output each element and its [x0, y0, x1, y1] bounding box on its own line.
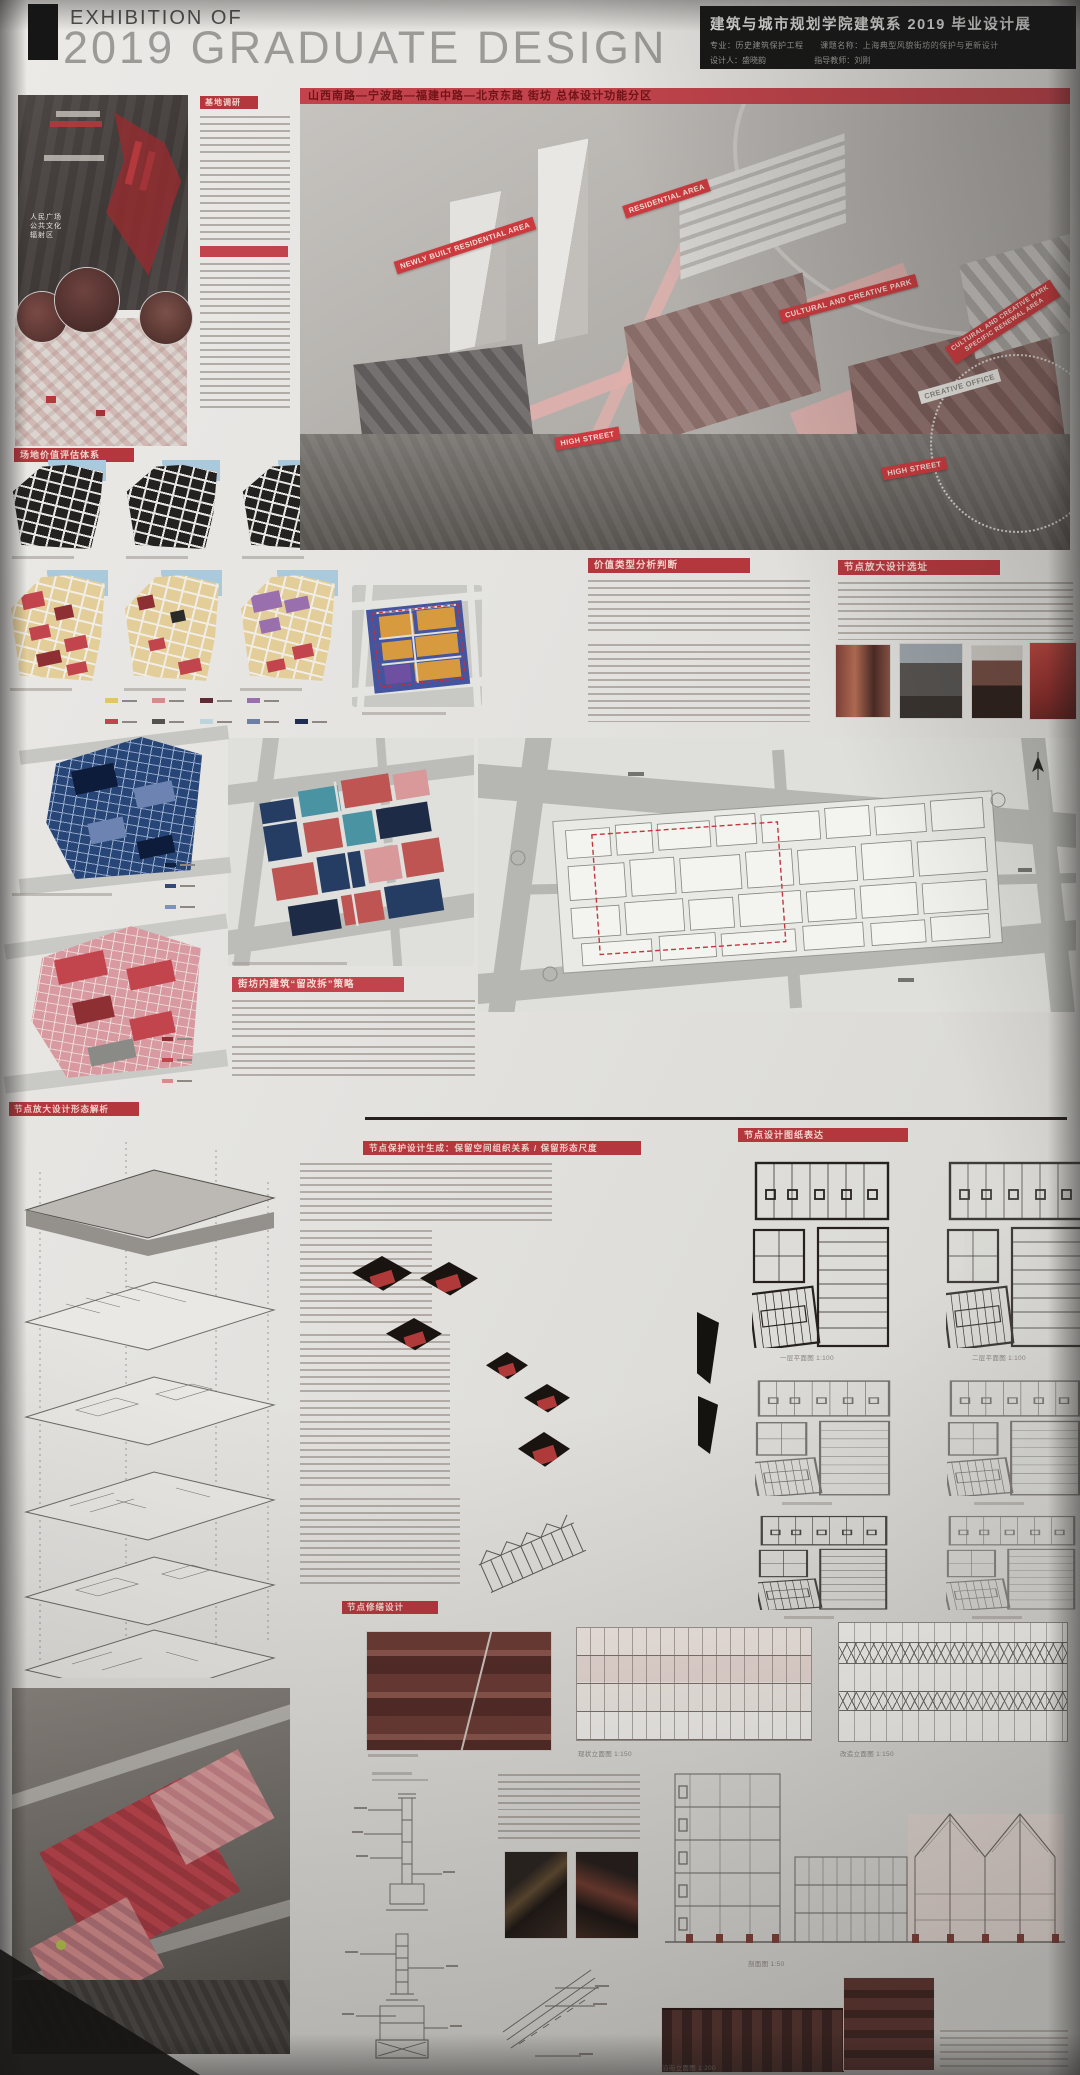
parapet-detail-drawing [350, 1790, 460, 1920]
interior-photo [576, 1852, 638, 1938]
section-caption: 剖面图 1:50 [748, 1958, 784, 1968]
map-caption [126, 556, 188, 559]
paragraph-lines [838, 582, 1073, 612]
info-designer: 设计人：盛晓韵 [710, 56, 766, 65]
map-caption [242, 556, 304, 559]
figure-ground-shape [124, 464, 218, 550]
value-judgement-plan [352, 585, 482, 707]
paragraph-lines [300, 1498, 460, 1584]
legend-row [105, 692, 355, 710]
section-title-strategy: 街坊内建筑“留改拆”策略 [232, 977, 404, 992]
collage-dark-band [12, 1980, 290, 2054]
page-title: 2019 GRADUATE DESIGN [63, 22, 667, 74]
aerial-square-label-l1: 人民广场 [30, 213, 62, 222]
master-site-plan [478, 738, 1076, 1012]
street-photo [900, 644, 962, 718]
floor-plan [755, 1378, 893, 1496]
paragraph-lines [200, 263, 290, 315]
render-collage-map [12, 1688, 290, 2054]
value-map-shape [122, 574, 220, 682]
pedestal-detail-drawing [340, 1928, 470, 2073]
paragraph-lines [300, 1400, 450, 1488]
detail-label [372, 1772, 412, 1775]
poster-photo: EXHIBITION OF 2019 GRADUATE DESIGN 建筑与城市… [0, 0, 1080, 2075]
elevation-caption: 现状立面图 1:150 [578, 1748, 632, 1758]
structure-frames-diagram [468, 1496, 586, 1600]
street-photo [972, 646, 1022, 718]
section-title-node-generation: 节点保护设计生成：保留空间组织关系 / 保留形态尺度 [363, 1141, 641, 1155]
plan-caption: 一层平面图 1:100 [780, 1352, 834, 1362]
interior-photo [505, 1852, 567, 1938]
aerial-square-label: 人民广场 公共文化 辐射区 [30, 213, 62, 240]
paragraph-lines [300, 1163, 552, 1221]
aerial-label-chip [56, 111, 100, 117]
street-photo [1030, 643, 1076, 719]
courtyard-axon-diagram [524, 1384, 570, 1430]
photo-scratch [455, 1632, 494, 1750]
plan-caption [784, 1616, 834, 1619]
paragraph-lines [498, 1816, 640, 1844]
plan-caption [782, 1502, 832, 1505]
map-caption [124, 688, 186, 691]
photo-caption [368, 1754, 418, 1757]
historic-map-marker [96, 410, 105, 416]
value-map [8, 574, 106, 682]
value-map [122, 574, 220, 682]
info-panel: 建筑与城市规划学院建筑系 2019 毕业设计展 专业：历史建筑保护工程 课题名称… [700, 6, 1076, 69]
dark-fragment [697, 1312, 719, 1384]
paragraph-lines [838, 618, 1073, 640]
exploded-axonometric [6, 1122, 292, 1678]
aerial-site-polygon [100, 112, 182, 284]
section-title-node-drawings: 节点设计图纸表达 [738, 1128, 908, 1142]
info-title: 建筑与城市规划学院建筑系 2019 毕业设计展 [710, 13, 1066, 34]
paragraph-lines [200, 116, 290, 154]
historic-map-marker [46, 396, 56, 403]
detail-label [372, 1779, 428, 1781]
paragraph-lines [200, 160, 290, 205]
figure-ground-map [124, 464, 218, 550]
figure-ground-shape [10, 464, 104, 550]
info-advisor: 指导教师：刘刚 [814, 56, 870, 65]
aerial-square-label-l3: 辐射区 [30, 231, 62, 240]
figure-ground-map [10, 464, 104, 550]
paragraph-lines [498, 1774, 640, 1810]
divider-rule [365, 1117, 1067, 1120]
paragraph-lines [588, 580, 810, 636]
facade-photo [367, 1632, 551, 1750]
historic-photo-circle [55, 268, 119, 332]
value-map-shape [8, 574, 106, 682]
strategy-legend [162, 1030, 192, 1090]
section-title-site-research: 基地调研 [200, 96, 258, 109]
map-caption [12, 556, 74, 559]
collage-green-dot [56, 1940, 66, 1950]
street-elevation-caption: 沿街立面图 1:200 [662, 2062, 716, 2072]
value-map-shape [238, 574, 336, 682]
floor-plan [758, 1514, 890, 1610]
street-elevation-tower [844, 1978, 934, 2070]
building-section-drawing [660, 1762, 1070, 1957]
info-topic: 课题名称：上海典型风貌街坊的保护与更新设计 [820, 41, 999, 50]
elevation-renovated-drawing [838, 1622, 1068, 1742]
floor-plan [947, 1378, 1080, 1496]
elevation-caption: 改造立面图 1:150 [840, 1748, 894, 1758]
quality-map [25, 728, 225, 896]
section-title-value-judgement: 价值类型分析判断 [588, 558, 750, 573]
map-caption [240, 688, 302, 691]
paragraph-lines [200, 321, 290, 365]
paragraph-lines [232, 1000, 475, 1040]
floor-plan [946, 1158, 1080, 1348]
paragraph-lines [200, 371, 290, 409]
white-tower [538, 139, 588, 345]
street-elevation-collage [662, 1978, 934, 2070]
elevation-existing-drawing [576, 1627, 812, 1741]
info-major: 专业：历史建筑保护工程 [710, 41, 804, 50]
white-tower [450, 190, 506, 352]
plan-caption: 二层平面图 1:100 [972, 1352, 1026, 1362]
historic-photo-circle [140, 292, 192, 344]
aerial-label-chip [44, 155, 104, 161]
section-subtitle-bar [200, 246, 288, 257]
value-map [238, 574, 336, 682]
master-axonometric-image: NEWLY BUILT RESIDENTIAL AREA RESIDENTIAL… [300, 104, 1070, 550]
map-caption [232, 962, 347, 965]
poster-board: EXHIBITION OF 2019 GRADUATE DESIGN 建筑与城市… [0, 0, 1080, 2075]
courtyard-axon-diagram [486, 1352, 528, 1396]
map-caption [10, 688, 72, 691]
section-title-node-repair: 节点修缮设计 [342, 1601, 438, 1614]
header-black-tab [28, 4, 58, 60]
paragraph-lines [588, 644, 810, 722]
plan-caption [362, 712, 446, 715]
paragraph-lines [940, 2030, 1068, 2072]
plan-caption [972, 1616, 1022, 1619]
paragraph-lines [200, 210, 290, 240]
courtyard-axon-diagram [518, 1432, 570, 1488]
section-title-node-form: 节点放大设计形态解析 [9, 1102, 139, 1116]
map-caption [12, 893, 112, 896]
existing-buildings-map [228, 738, 474, 966]
street-photo [836, 645, 890, 717]
eave-detail-drawing [495, 1948, 615, 2070]
floor-plan [946, 1514, 1078, 1610]
dark-fragment [698, 1396, 718, 1454]
plan-caption [974, 1502, 1024, 1505]
section-title-node-site: 节点放大设计选址 [838, 560, 1000, 575]
section-title-master-plan: 山西南路—宁波路—福建中路—北京东路 街坊 总体设计功能分区 [300, 88, 1070, 104]
aerial-square-label-l2: 公共文化 [30, 222, 62, 231]
paragraph-lines [232, 1046, 475, 1080]
paragraph-lines [300, 1334, 450, 1392]
value-legend [105, 692, 355, 731]
aerial-label-chip [50, 121, 102, 127]
floor-plan [752, 1158, 892, 1348]
